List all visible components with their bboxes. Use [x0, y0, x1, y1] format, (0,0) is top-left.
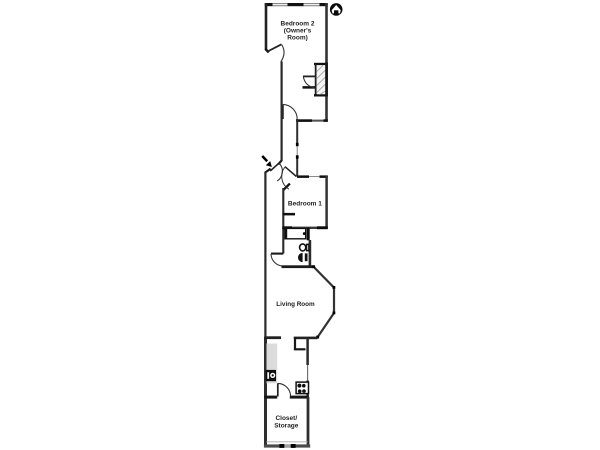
- svg-text:(Owner's: (Owner's: [284, 28, 312, 35]
- svg-text:Bedroom 2: Bedroom 2: [281, 21, 315, 28]
- svg-text:Living Room: Living Room: [276, 301, 315, 308]
- svg-text:Closet/: Closet/: [275, 415, 297, 422]
- svg-text:Room): Room): [287, 35, 308, 42]
- svg-text:Storage: Storage: [274, 422, 299, 429]
- svg-text:Bedroom 1: Bedroom 1: [288, 201, 322, 208]
